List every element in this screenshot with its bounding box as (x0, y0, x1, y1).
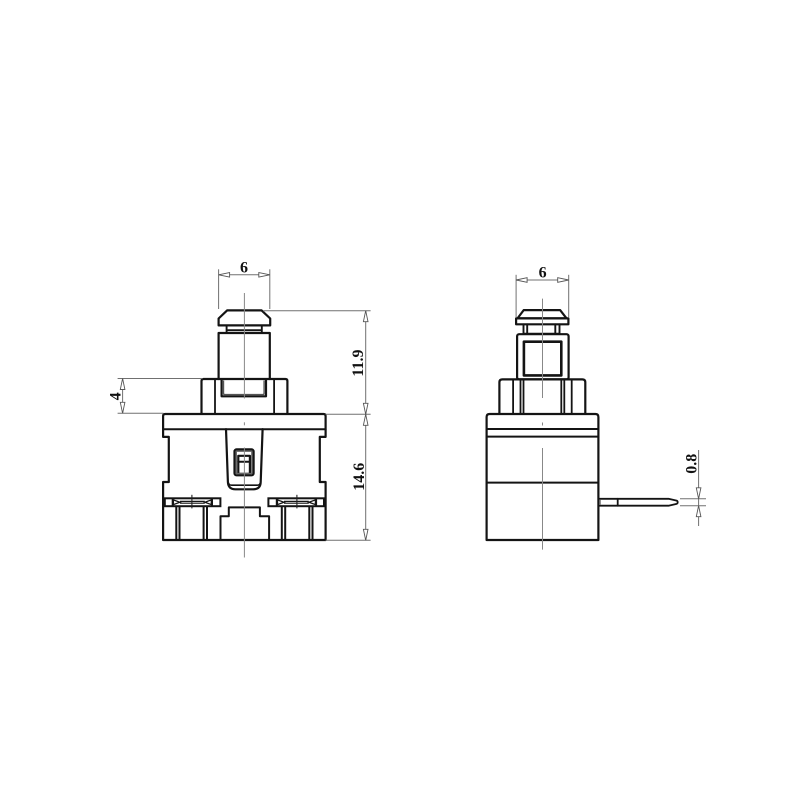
svg-text:4: 4 (108, 392, 125, 400)
svg-text:0.8: 0.8 (683, 454, 700, 474)
svg-text:11.9: 11.9 (350, 349, 367, 376)
svg-text:14.6: 14.6 (351, 463, 368, 491)
svg-text:6: 6 (539, 265, 547, 282)
svg-text:6: 6 (240, 259, 248, 276)
